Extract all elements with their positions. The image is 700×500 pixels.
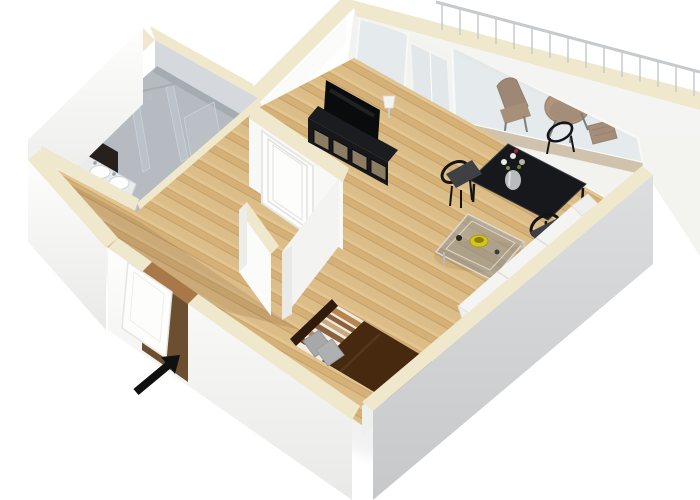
partition-wall-cap: [282, 246, 292, 320]
floor-plan-svg: [0, 0, 700, 500]
vase: [505, 170, 521, 190]
flower: [501, 159, 507, 165]
shower-head: [147, 94, 153, 100]
tap: [112, 172, 116, 176]
table-lamp-shade: [383, 96, 395, 108]
flower: [510, 153, 516, 159]
tap: [93, 161, 97, 165]
flower-leaf: [517, 165, 521, 169]
table-leg: [473, 184, 474, 202]
decor-item: [456, 235, 462, 241]
stub-wall-cap: [239, 202, 247, 272]
decor-item: [495, 250, 500, 255]
vase-highlight: [509, 172, 510, 186]
yellow-bowl-inner: [474, 237, 484, 243]
floor-plan-render: [0, 0, 700, 500]
flower: [514, 149, 518, 153]
flower-leaf: [506, 166, 510, 170]
flower: [519, 159, 525, 165]
